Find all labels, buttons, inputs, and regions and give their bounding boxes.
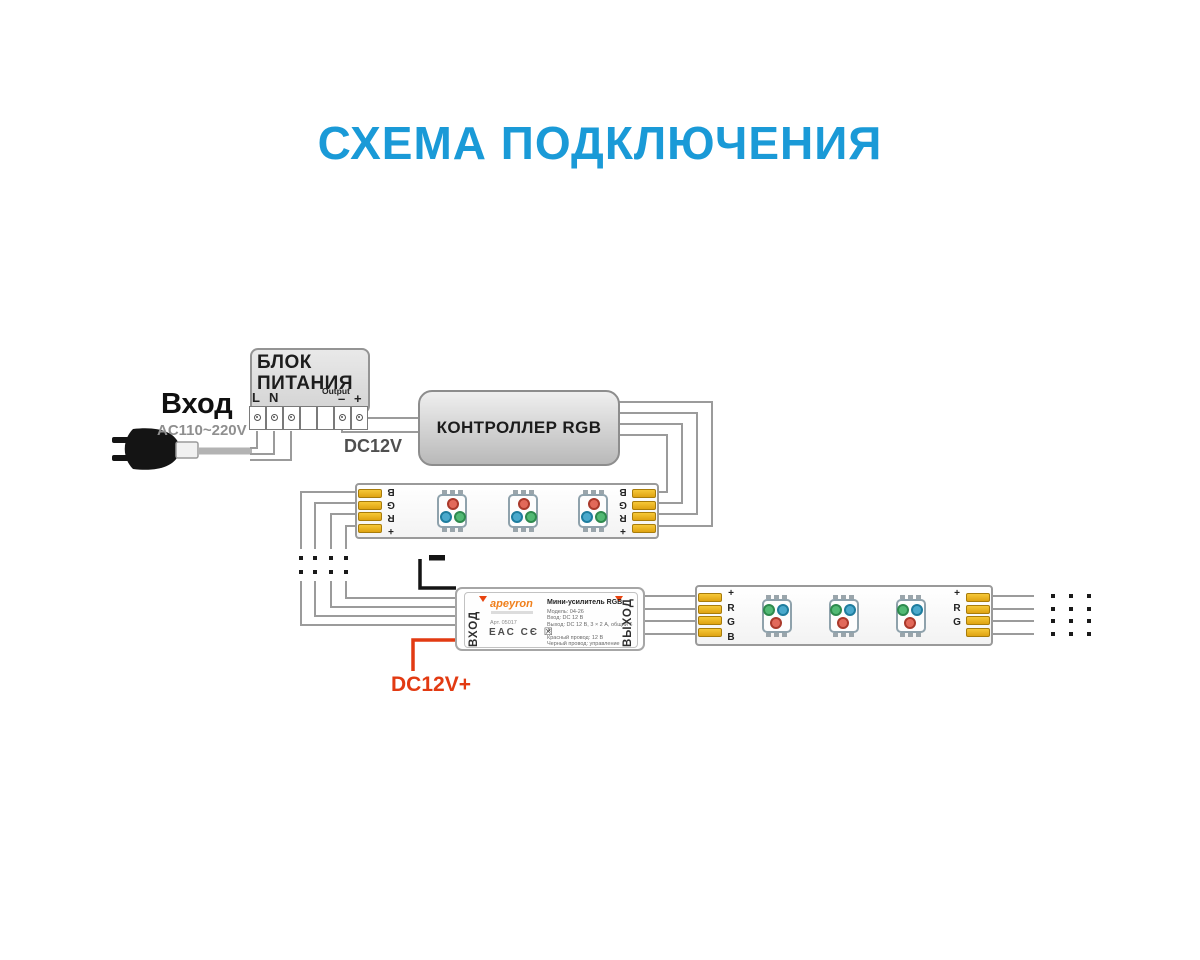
led-chip bbox=[762, 599, 792, 633]
terminal-cell-empty bbox=[300, 406, 317, 430]
green-led-dot bbox=[454, 511, 466, 523]
led-chip bbox=[896, 599, 926, 633]
strip1-left-labels: B G R + bbox=[386, 486, 396, 536]
pad-label: + bbox=[386, 525, 396, 536]
red-led-dot bbox=[837, 617, 849, 629]
amp-to-strip2-wires bbox=[644, 596, 698, 634]
blue-led-dot bbox=[844, 604, 856, 616]
rgb-controller-box: КОНТРОЛЛЕР RGB bbox=[418, 390, 620, 466]
continuation-dots-right bbox=[1051, 594, 1091, 636]
blue-led-dot bbox=[511, 511, 523, 523]
output-label: Output bbox=[322, 386, 350, 396]
solder-pad bbox=[966, 593, 990, 602]
led-strip-1: B G R + B G R + bbox=[355, 483, 659, 539]
pad-label: R bbox=[386, 512, 396, 523]
solder-pad bbox=[698, 628, 722, 637]
pad-label: G bbox=[952, 617, 962, 628]
pad-label: G bbox=[386, 499, 396, 510]
terminal-cell-plus bbox=[351, 406, 368, 430]
strip1-left-pads bbox=[358, 489, 382, 533]
pad-label: + bbox=[618, 525, 628, 536]
pad-label: + bbox=[952, 588, 962, 599]
page-title: СХЕМА ПОДКЛЮЧЕНИЯ bbox=[0, 116, 1200, 170]
rgb-controller-label: КОНТРОЛЛЕР RGB bbox=[437, 418, 602, 438]
led-strip-2: + R G B + R G bbox=[695, 585, 993, 646]
amp-input-label: ВХОД bbox=[468, 593, 480, 647]
blue-led-dot bbox=[581, 511, 593, 523]
strip1-right-pads bbox=[632, 489, 656, 533]
continuation-dots-left bbox=[299, 556, 348, 574]
output-minus-label: – bbox=[338, 391, 345, 406]
blue-led-dot bbox=[777, 604, 789, 616]
dc12v-plus-label: DC12V+ bbox=[391, 673, 471, 697]
strip1-right-labels: B G R + bbox=[618, 486, 628, 536]
pad-label: B bbox=[726, 632, 736, 643]
green-led-dot bbox=[525, 511, 537, 523]
output-plus-label: + bbox=[354, 391, 362, 406]
solder-pad bbox=[358, 501, 382, 510]
pad-label bbox=[952, 632, 962, 643]
terminal-cell-minus bbox=[334, 406, 351, 430]
blue-led-dot bbox=[911, 604, 923, 616]
red-led-dot bbox=[770, 617, 782, 629]
led-chip bbox=[829, 599, 859, 633]
solder-pad bbox=[966, 616, 990, 625]
terminal-screw bbox=[254, 414, 261, 421]
certification-marks: ЕАС CЄ ☒ bbox=[489, 627, 555, 638]
green-led-dot bbox=[897, 604, 909, 616]
terminal-cell-n bbox=[266, 406, 283, 430]
pad-label: B bbox=[618, 486, 628, 497]
terminal-label-n: N bbox=[269, 390, 278, 405]
strip2-right-wires bbox=[990, 596, 1034, 634]
strip2-left-pads bbox=[698, 593, 722, 637]
solder-pad bbox=[698, 593, 722, 602]
terminal-screw bbox=[339, 414, 346, 421]
brand-tagline bbox=[491, 611, 533, 614]
red-led-dot bbox=[588, 498, 600, 510]
brand-logo: apeyron bbox=[490, 598, 533, 610]
red-led-dot bbox=[447, 498, 459, 510]
solder-pad bbox=[358, 512, 382, 521]
pad-label: G bbox=[618, 499, 628, 510]
pad-label: R bbox=[618, 512, 628, 523]
blue-led-dot bbox=[440, 511, 452, 523]
pad-label: R bbox=[726, 603, 736, 614]
pad-label: B bbox=[386, 486, 396, 497]
mini-amplifier-box: ВХОД ВЫХОД apeyron Мини-усилитель RGB Мо… bbox=[455, 587, 645, 651]
solder-pad bbox=[632, 489, 656, 498]
pad-label: G bbox=[726, 617, 736, 628]
input-label: Вход bbox=[161, 388, 233, 421]
input-marker-icon bbox=[479, 596, 487, 602]
plus-wire-red bbox=[413, 640, 456, 671]
connection-diagram: СХЕМА ПОДКЛЮЧЕНИЯ БЛОК ПИТАНИЯ L N Outpu… bbox=[0, 0, 1200, 960]
green-led-dot bbox=[830, 604, 842, 616]
solder-pad bbox=[632, 512, 656, 521]
led-chip bbox=[508, 494, 538, 528]
solder-pad bbox=[966, 605, 990, 614]
solder-pad bbox=[632, 501, 656, 510]
red-led-dot bbox=[518, 498, 530, 510]
amplifier-label-area: ВХОД ВЫХОД apeyron Мини-усилитель RGB Мо… bbox=[464, 592, 638, 648]
led-chip bbox=[437, 494, 467, 528]
amp-output-label: ВЫХОД bbox=[622, 593, 634, 647]
terminal-cell-empty bbox=[317, 406, 334, 430]
solder-pad bbox=[966, 628, 990, 637]
solder-pad bbox=[698, 605, 722, 614]
terminal-screw bbox=[288, 414, 295, 421]
pad-label: R bbox=[952, 603, 962, 614]
amp-article-number: Арт. 05017 bbox=[490, 620, 517, 626]
led-chip bbox=[578, 494, 608, 528]
pad-label: + bbox=[726, 588, 736, 599]
strip2-right-pads bbox=[966, 593, 990, 637]
minus-wire bbox=[420, 555, 456, 588]
solder-pad bbox=[698, 616, 722, 625]
red-led-dot bbox=[904, 617, 916, 629]
green-led-dot bbox=[763, 604, 775, 616]
strip2-right-labels: + R G bbox=[952, 588, 962, 643]
terminal-screw bbox=[356, 414, 363, 421]
solder-pad bbox=[358, 524, 382, 533]
ac-voltage-label: AC110~220V bbox=[157, 422, 247, 439]
solder-pad bbox=[358, 489, 382, 498]
green-led-dot bbox=[595, 511, 607, 523]
terminal-screw bbox=[271, 414, 278, 421]
strip2-left-labels: + R G B bbox=[726, 588, 736, 643]
solder-pad bbox=[632, 524, 656, 533]
terminal-cell-l bbox=[249, 406, 266, 430]
terminal-cell-ground bbox=[283, 406, 300, 430]
terminal-label-l: L bbox=[252, 390, 260, 405]
dc12v-label: DC12V bbox=[344, 436, 402, 457]
amp-product-title: Мини-усилитель RGB bbox=[547, 599, 622, 606]
